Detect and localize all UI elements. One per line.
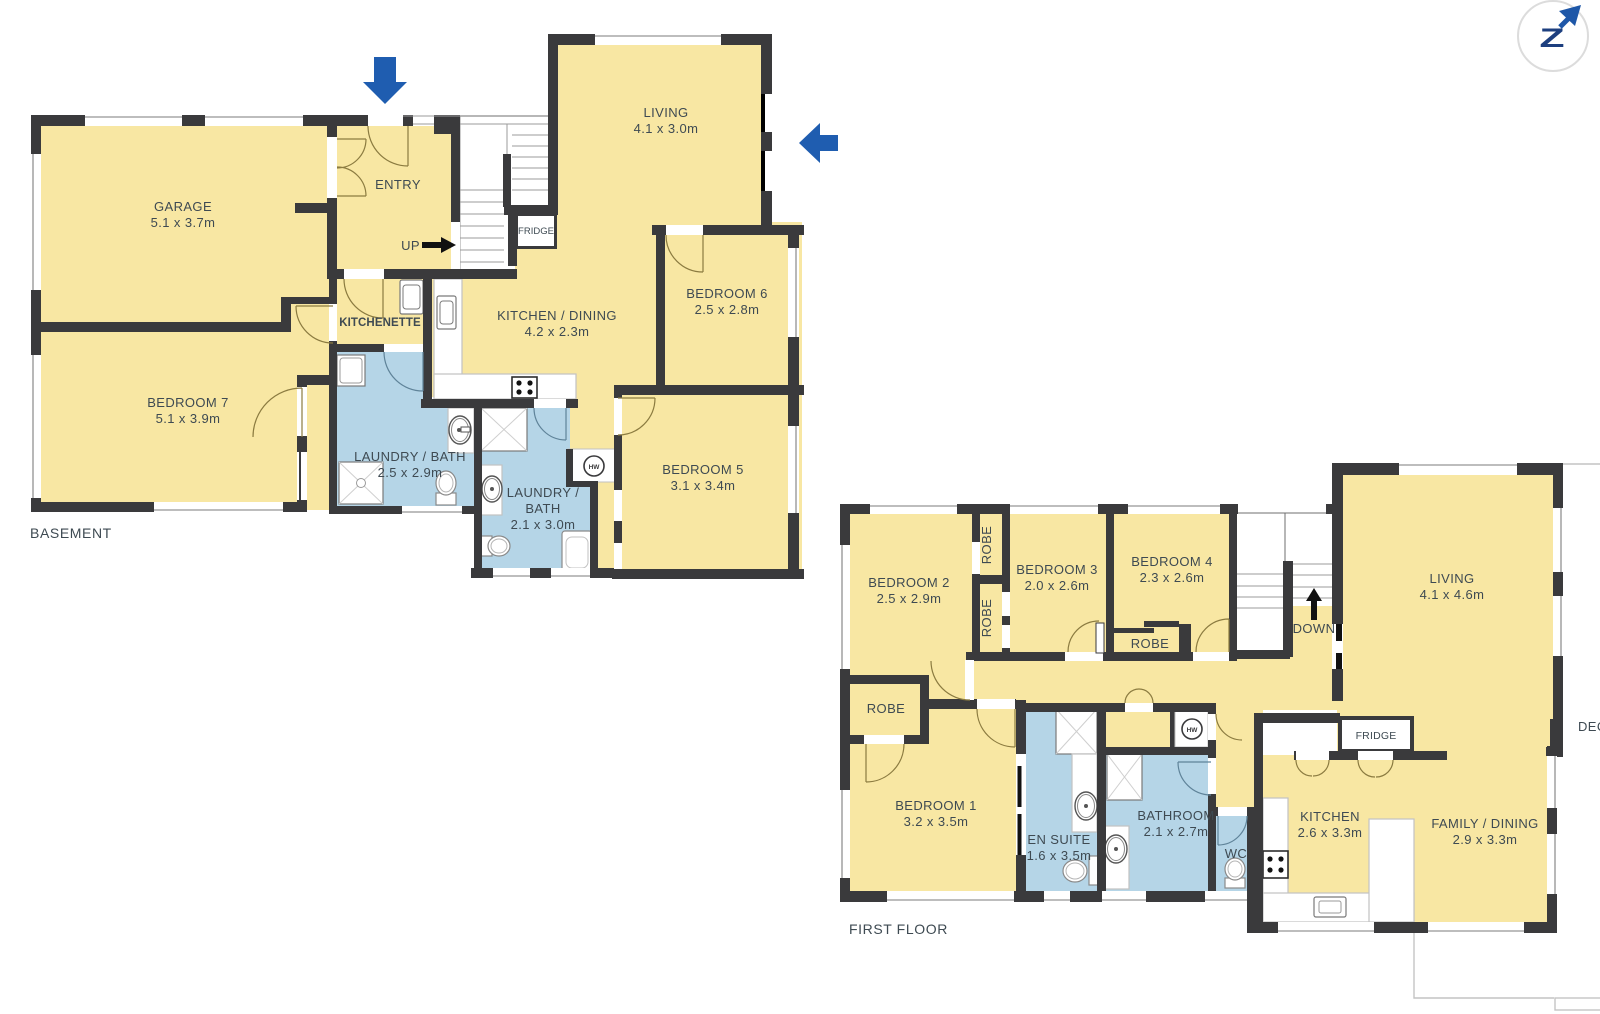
svg-text:3.2 x 3.5m: 3.2 x 3.5m <box>904 814 969 829</box>
svg-text:BEDROOM 5: BEDROOM 5 <box>662 462 744 477</box>
svg-text:2.6 x 3.3m: 2.6 x 3.3m <box>1298 825 1363 840</box>
svg-text:BEDROOM 3: BEDROOM 3 <box>1016 562 1098 577</box>
svg-text:BEDROOM 2: BEDROOM 2 <box>868 575 950 590</box>
svg-text:BEDROOM 4: BEDROOM 4 <box>1131 554 1213 569</box>
svg-text:2.9 x 3.3m: 2.9 x 3.3m <box>1453 832 1518 847</box>
svg-text:EN SUITE: EN SUITE <box>1027 832 1090 847</box>
svg-text:1.6 x 3.5m: 1.6 x 3.5m <box>1027 848 1092 863</box>
svg-text:KITCHEN: KITCHEN <box>1300 809 1360 824</box>
svg-text:4.2 x 2.3m: 4.2 x 2.3m <box>525 324 590 339</box>
svg-text:GARAGE: GARAGE <box>154 199 212 214</box>
svg-text:FAMILY / DINING: FAMILY / DINING <box>1431 816 1538 831</box>
svg-text:LAUNDRY /: LAUNDRY / <box>507 485 579 500</box>
svg-text:2.0 x 2.6m: 2.0 x 2.6m <box>1025 578 1090 593</box>
svg-text:ROBE: ROBE <box>979 526 994 564</box>
svg-text:LIVING: LIVING <box>643 105 688 120</box>
svg-text:DECK: DECK <box>1578 719 1600 734</box>
svg-text:4.1 x 3.0m: 4.1 x 3.0m <box>634 121 699 136</box>
svg-text:WC: WC <box>1225 846 1247 861</box>
svg-text:LIVING: LIVING <box>1429 571 1474 586</box>
svg-text:HW: HW <box>1187 727 1199 734</box>
svg-text:DOWN: DOWN <box>1293 621 1336 636</box>
svg-text:KITCHEN / DINING: KITCHEN / DINING <box>497 308 617 323</box>
svg-text:2.5 x 2.9m: 2.5 x 2.9m <box>877 591 942 606</box>
svg-text:UP: UP <box>401 238 420 253</box>
svg-text:FRIDGE: FRIDGE <box>518 226 554 237</box>
svg-text:BEDROOM 1: BEDROOM 1 <box>895 798 977 813</box>
svg-text:BATH: BATH <box>525 501 560 516</box>
svg-text:3.1 x 3.4m: 3.1 x 3.4m <box>671 478 736 493</box>
svg-text:KITCHENETTE: KITCHENETTE <box>339 317 421 329</box>
svg-text:5.1 x 3.7m: 5.1 x 3.7m <box>151 215 216 230</box>
svg-text:FRIDGE: FRIDGE <box>1356 730 1397 742</box>
svg-text:BASEMENT: BASEMENT <box>30 525 112 541</box>
svg-text:HW: HW <box>589 464 601 471</box>
svg-text:2.3 x 2.6m: 2.3 x 2.6m <box>1140 570 1205 585</box>
svg-text:BEDROOM 6: BEDROOM 6 <box>686 286 768 301</box>
svg-text:ROBE: ROBE <box>867 701 905 716</box>
svg-text:2.5 x 2.9m: 2.5 x 2.9m <box>378 465 443 480</box>
svg-text:2.1 x 3.0m: 2.1 x 3.0m <box>511 517 576 532</box>
svg-text:LAUNDRY / BATH: LAUNDRY / BATH <box>354 449 466 464</box>
svg-text:5.1 x 3.9m: 5.1 x 3.9m <box>156 411 221 426</box>
svg-text:ROBE: ROBE <box>1131 636 1169 651</box>
svg-text:4.1 x 4.6m: 4.1 x 4.6m <box>1420 587 1485 602</box>
svg-text:ROBE: ROBE <box>979 599 994 637</box>
svg-text:BATHROOM: BATHROOM <box>1137 808 1214 823</box>
svg-text:FIRST FLOOR: FIRST FLOOR <box>849 921 948 937</box>
svg-text:2.1 x 2.7m: 2.1 x 2.7m <box>1144 824 1209 839</box>
svg-text:ENTRY: ENTRY <box>375 177 421 192</box>
svg-text:2.5 x 2.8m: 2.5 x 2.8m <box>695 302 760 317</box>
svg-text:BEDROOM 7: BEDROOM 7 <box>147 395 229 410</box>
